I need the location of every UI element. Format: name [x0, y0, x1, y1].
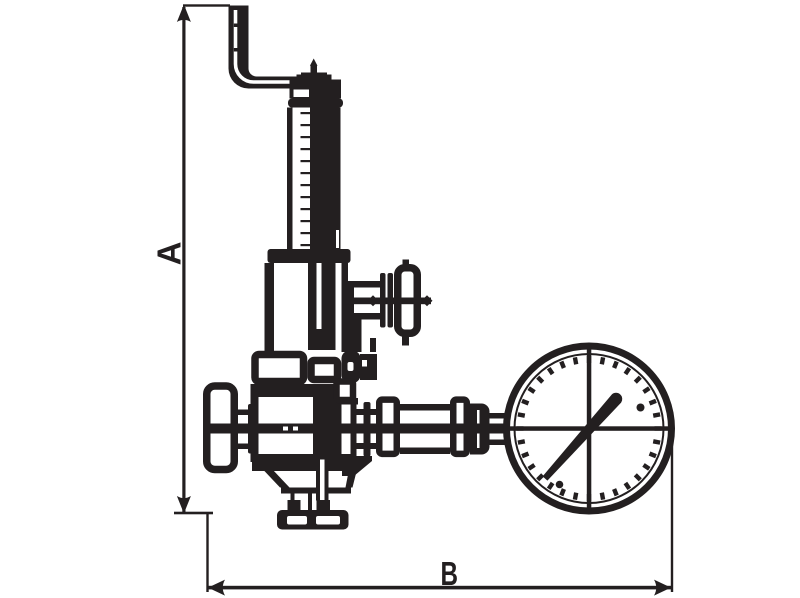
svg-text:B: B [441, 555, 459, 592]
svg-text:A: A [151, 242, 188, 266]
